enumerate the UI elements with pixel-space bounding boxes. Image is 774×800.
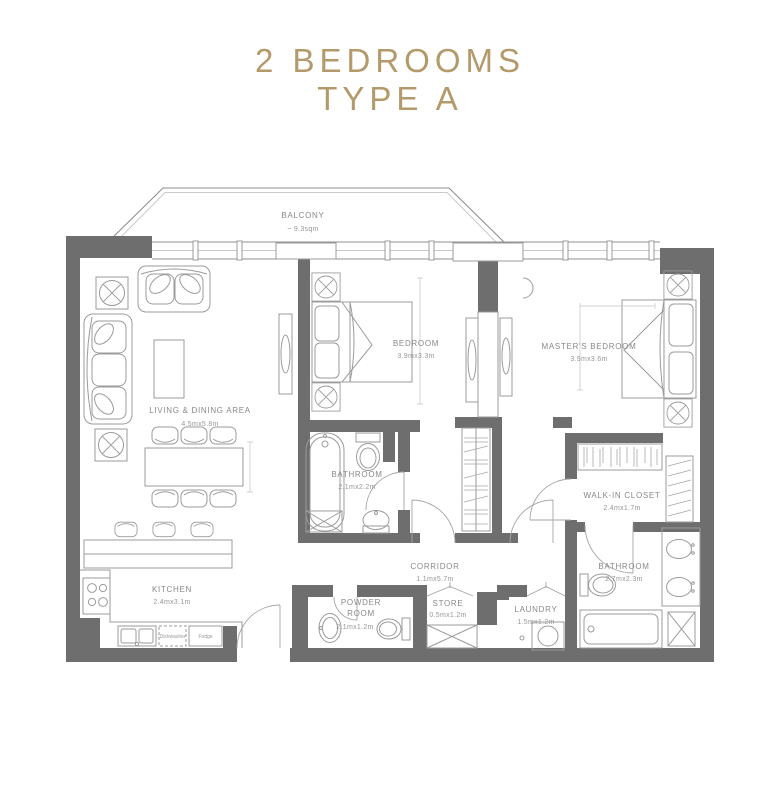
toilet	[356, 433, 380, 471]
svg-text:WALK-IN CLOSET: WALK-IN CLOSET	[583, 491, 660, 500]
svg-text:KITCHEN: KITCHEN	[152, 585, 192, 594]
svg-text:2.1mx1.2m: 2.1mx1.2m	[336, 624, 373, 631]
svg-text:LIVING & DINING AREA: LIVING & DINING AREA	[149, 406, 251, 415]
svg-text:1.5mx1.2m: 1.5mx1.2m	[517, 619, 554, 626]
dining-table-set	[145, 427, 253, 507]
floor-plan-canvas: 2 BEDROOMS TYPE A	[0, 0, 774, 800]
svg-text:3.9mx3.6m: 3.9mx3.6m	[570, 356, 607, 363]
room-label-kitchen: KITCHEN 2.4mx3.1m	[152, 585, 192, 606]
sliding-door-bedrooms	[453, 243, 523, 261]
svg-text:3.9mx3.3m: 3.9mx3.3m	[397, 353, 434, 360]
bathroom1-fixtures	[306, 433, 389, 533]
nightstand	[664, 399, 692, 427]
shower	[668, 612, 695, 646]
title-line-1: 2 BEDROOMS	[255, 42, 525, 79]
wardrobe-right	[666, 456, 693, 522]
loveseat	[138, 266, 210, 312]
toilet	[377, 618, 410, 640]
store-bifold-door	[427, 582, 473, 596]
kitchen-sink	[118, 626, 156, 646]
laundry-fixtures	[520, 622, 564, 650]
svg-text:0.5mx1.2m: 0.5mx1.2m	[429, 612, 466, 619]
bathtub	[306, 433, 344, 531]
room-label-walkin-closet: WALK-IN CLOSET 2.4mx1.7m	[583, 491, 660, 512]
store-shaft	[427, 625, 477, 648]
window-band	[152, 241, 660, 261]
svg-text:POWDER: POWDER	[341, 598, 381, 607]
hob	[83, 578, 110, 614]
nightstand	[312, 273, 340, 301]
room-label-balcony: BALCONY ~ 9.3sqm	[281, 211, 324, 233]
svg-text:BATHROOM: BATHROOM	[598, 562, 649, 571]
wall-light	[523, 278, 533, 298]
svg-text:LAUNDRY: LAUNDRY	[515, 605, 558, 614]
sofa	[84, 314, 132, 424]
room-label-bathroom1: BATHROOM 2.1mx2.2m	[331, 470, 382, 491]
room-label-powder-room: POWDER ROOM 2.1mx1.2m	[336, 598, 381, 631]
sliding-door-living	[276, 243, 336, 259]
bathtub	[580, 610, 662, 648]
svg-text:2.4mx1.7m: 2.4mx1.7m	[603, 505, 640, 512]
fridge-label: Fridge	[198, 634, 212, 640]
svg-text:STORE: STORE	[433, 599, 464, 608]
svg-text:1.1mx5.7m: 1.1mx5.7m	[416, 576, 453, 583]
svg-text:BATHROOM: BATHROOM	[331, 470, 382, 479]
side-table	[95, 429, 127, 461]
dining-table	[145, 448, 243, 486]
entry-door	[237, 605, 280, 648]
svg-text:4.5mx5.8m: 4.5mx5.8m	[181, 421, 218, 428]
washing-machine	[532, 622, 564, 650]
svg-text:2.1mx2.2m: 2.1mx2.2m	[338, 484, 375, 491]
room-label-bedroom: BEDROOM 3.9mx3.3m	[393, 339, 439, 360]
room-label-corridor: CORRIDOR 1.1mx5.7m	[410, 562, 459, 583]
basin	[363, 511, 389, 534]
svg-text:MASTER'S BEDROOM: MASTER'S BEDROOM	[542, 342, 637, 351]
laundry-bifold-door	[527, 582, 565, 596]
dresser-bedroom	[466, 318, 478, 402]
valve	[520, 636, 524, 640]
walkin-closet-door	[530, 479, 571, 520]
room-label-laundry: LAUNDRY 1.5mx1.2m	[515, 605, 558, 626]
plan-title: 2 BEDROOMS TYPE A	[255, 42, 525, 117]
nightstand	[664, 271, 692, 299]
svg-text:~ 9.3sqm: ~ 9.3sqm	[287, 226, 318, 233]
living-dining-furniture	[84, 266, 292, 507]
coffee-table	[154, 340, 184, 398]
dishwasher: Dishwasher	[159, 626, 186, 646]
svg-text:2.4mx3.1m: 2.4mx3.1m	[153, 599, 190, 606]
svg-text:ROOM: ROOM	[347, 609, 375, 618]
room-label-living-dining: LIVING & DINING AREA 4.5mx5.8m	[149, 406, 251, 428]
svg-text:CORRIDOR: CORRIDOR	[410, 562, 459, 571]
nightstand	[312, 383, 340, 411]
title-line-2: TYPE A	[317, 80, 463, 117]
dishwasher-label: Dishwasher	[159, 634, 185, 640]
svg-text:BEDROOM: BEDROOM	[393, 339, 439, 348]
fridge: Fridge	[189, 626, 222, 646]
floorplan-page: 2 BEDROOMS TYPE A	[0, 0, 774, 800]
bathroom2-fixtures	[580, 528, 700, 648]
room-label-store: STORE 0.5mx1.2m	[429, 599, 466, 619]
tv-console-living	[279, 314, 292, 394]
side-table	[96, 277, 128, 309]
double-vanity	[662, 528, 700, 606]
wardrobe-top	[578, 444, 662, 470]
tv-console-master	[500, 318, 512, 396]
breakfast-bar	[84, 522, 232, 568]
svg-text:BALCONY: BALCONY	[281, 211, 324, 220]
svg-text:2.7mx2.3m: 2.7mx2.3m	[605, 576, 642, 583]
